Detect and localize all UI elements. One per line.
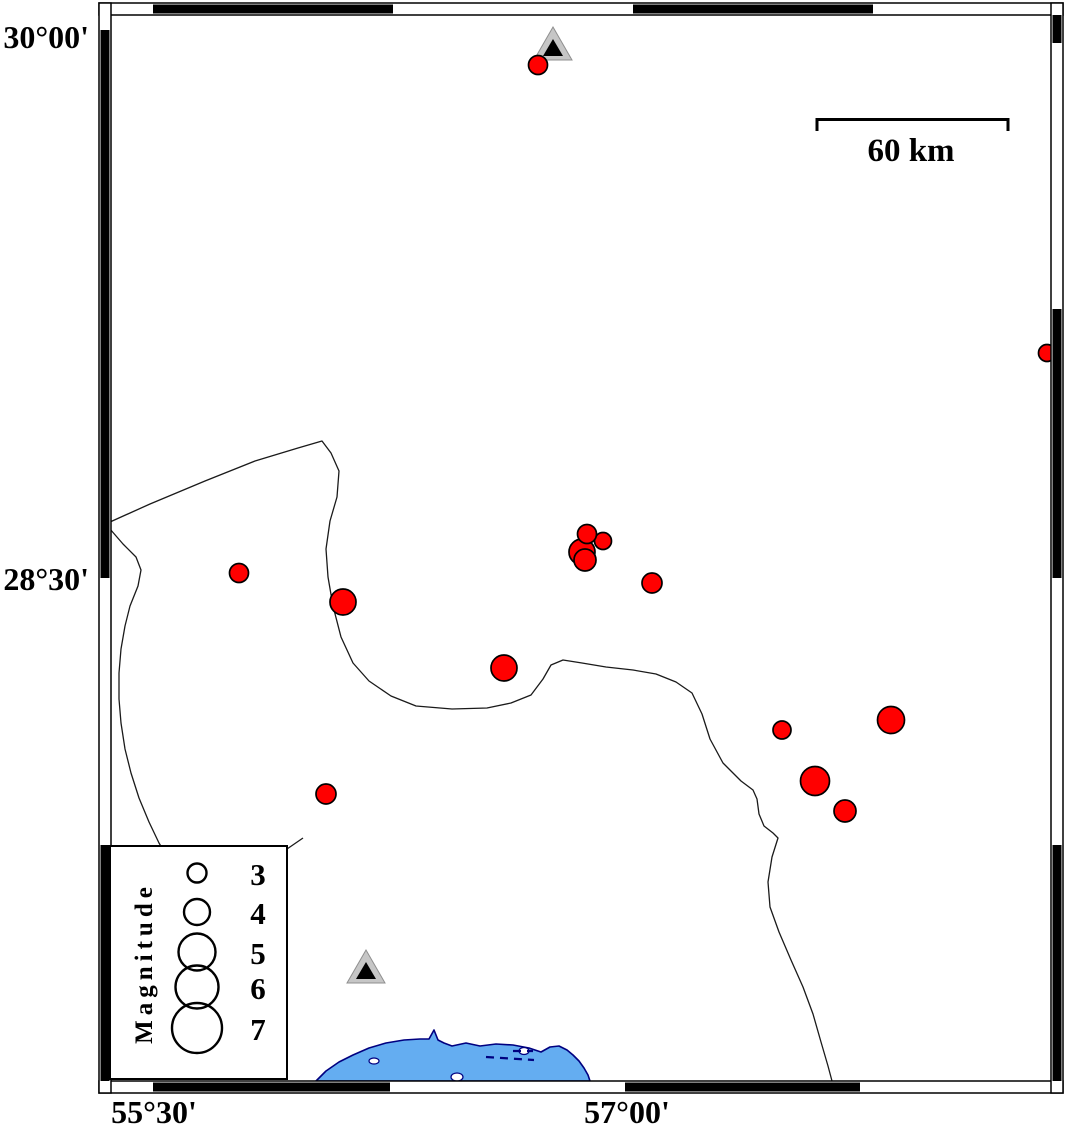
earthquake-marker — [578, 525, 597, 544]
earthquake-marker — [491, 655, 517, 681]
legend-magnitude-value: 7 — [250, 1012, 266, 1047]
frame-segment — [1053, 309, 1062, 578]
lon-label-55-30: 55°30' — [111, 1094, 197, 1130]
earthquake-marker — [878, 707, 905, 734]
earthquake-marker — [642, 573, 662, 593]
island — [451, 1073, 463, 1081]
lat-label-28-30: 28°30' — [3, 561, 89, 597]
frame-segment — [153, 1083, 390, 1092]
frame-segment — [153, 5, 393, 14]
earthquake-marker — [529, 56, 548, 75]
earthquake-marker — [574, 549, 596, 571]
frame-segment — [101, 845, 110, 1081]
frame-segment — [633, 5, 873, 14]
earthquake-marker — [316, 784, 336, 804]
legend-magnitude-value: 5 — [250, 936, 266, 971]
legend-magnitude-value: 4 — [250, 896, 266, 931]
earthquake-marker — [330, 589, 356, 615]
legend-magnitude-value: 3 — [250, 857, 266, 892]
earthquake-marker — [834, 800, 856, 822]
magnitude-legend: Magnitude 34567 — [110, 846, 287, 1079]
seismicity-map: 30°00' 28°30' 55°30' 57°00' 60 km Magnit… — [0, 0, 1066, 1130]
island — [369, 1058, 379, 1064]
earthquake-marker — [773, 721, 791, 739]
lat-label-30-00: 30°00' — [3, 19, 89, 55]
frame-segment — [1053, 15, 1062, 43]
earthquake-marker — [801, 767, 830, 796]
frame-segment — [625, 1083, 860, 1092]
frame-segment — [101, 30, 110, 578]
scale-bar-label: 60 km — [867, 133, 954, 169]
earthquake-marker — [230, 564, 249, 583]
lon-label-57-00: 57°00' — [584, 1094, 670, 1130]
legend-magnitude-value: 6 — [250, 971, 266, 1006]
frame-segment — [1053, 845, 1062, 1081]
legend-title: Magnitude — [131, 882, 158, 1044]
